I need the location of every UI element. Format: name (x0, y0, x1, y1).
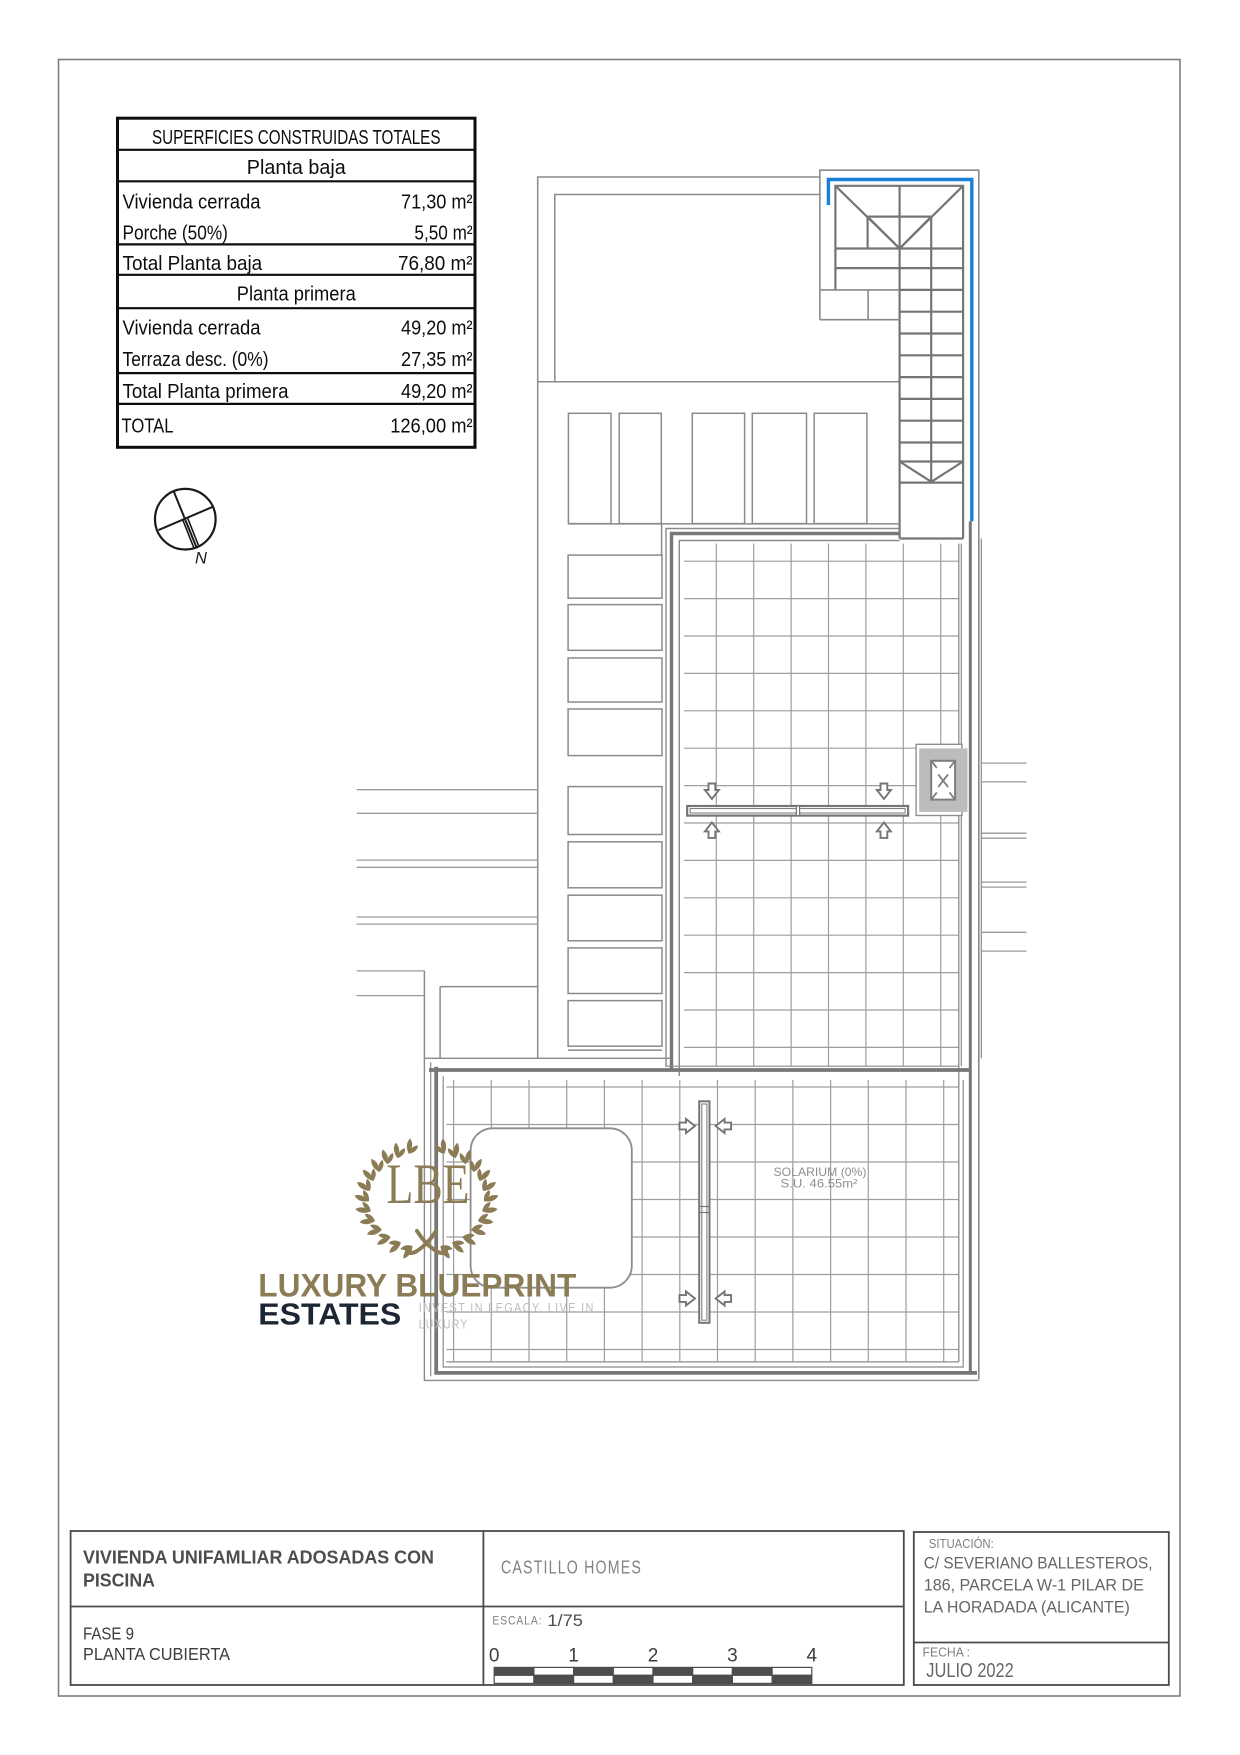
svg-text:N: N (195, 550, 207, 568)
svg-text:ESTATES: ESTATES (258, 1297, 401, 1332)
svg-text:PISCINA: PISCINA (83, 1571, 155, 1591)
svg-text:Vivienda cerrada: Vivienda cerrada (123, 191, 262, 213)
svg-text:C/ SEVERIANO BALLESTEROS,: C/ SEVERIANO BALLESTEROS, (924, 1554, 1153, 1573)
svg-text:Porche (50%): Porche (50%) (123, 223, 228, 245)
svg-text:PLANTA CUBIERTA: PLANTA CUBIERTA (83, 1644, 230, 1664)
svg-text:JULIO 2022: JULIO 2022 (926, 1660, 1014, 1682)
svg-text:INVEST IN LEGACY. LIVE IN: INVEST IN LEGACY. LIVE IN (419, 1301, 595, 1315)
svg-text:FECHA :: FECHA : (923, 1646, 971, 1660)
svg-text:SUPERFICIES CONSTRUIDAS TOTALE: SUPERFICIES CONSTRUIDAS TOTALES (152, 127, 441, 149)
svg-text:Vivienda cerrada: Vivienda cerrada (123, 318, 262, 340)
svg-text:Terraza desc. (0%): Terraza desc. (0%) (123, 349, 269, 371)
svg-text:2: 2 (648, 1646, 659, 1667)
svg-text:LA HORADADA (ALICANTE): LA HORADADA (ALICANTE) (924, 1598, 1130, 1617)
svg-text:0: 0 (489, 1646, 500, 1667)
svg-text:76,80 m²: 76,80 m² (398, 253, 473, 275)
svg-text:FASE 9: FASE 9 (83, 1624, 134, 1644)
svg-text:27,35 m²: 27,35 m² (401, 349, 473, 371)
svg-text:5,50 m²: 5,50 m² (414, 223, 472, 245)
svg-text:Total Planta baja: Total Planta baja (123, 253, 264, 275)
svg-text:LUXURY: LUXURY (419, 1318, 469, 1332)
svg-text:1/75: 1/75 (547, 1612, 583, 1630)
svg-text:S.U. 46.55m²: S.U. 46.55m² (781, 1176, 858, 1190)
svg-text:3: 3 (727, 1646, 738, 1667)
svg-text:ESCALA:: ESCALA: (492, 1616, 542, 1628)
svg-text:49,20 m²: 49,20 m² (401, 318, 473, 340)
svg-text:TOTAL: TOTAL (122, 416, 174, 438)
svg-text:186, PARCELA W-1 PILAR DE: 186, PARCELA W-1 PILAR DE (924, 1576, 1144, 1595)
svg-text:1: 1 (568, 1646, 579, 1667)
svg-text:CASTILLO HOMES: CASTILLO HOMES (501, 1558, 642, 1578)
svg-text:Total Planta primera: Total Planta primera (123, 381, 290, 403)
svg-text:Planta primera: Planta primera (237, 284, 357, 306)
svg-text:SITUACIÓN:: SITUACIÓN: (929, 1536, 994, 1551)
svg-text:49,20 m²: 49,20 m² (401, 381, 473, 403)
svg-text:VIVIENDA UNIFAMLIAR ADOSADAS C: VIVIENDA UNIFAMLIAR ADOSADAS CON (83, 1548, 434, 1568)
svg-text:71,30 m²: 71,30 m² (401, 191, 473, 213)
svg-text:4: 4 (807, 1646, 818, 1667)
svg-text:126,00 m²: 126,00 m² (390, 416, 473, 438)
svg-text:Planta baja: Planta baja (247, 157, 347, 179)
svg-text:LBE: LBE (387, 1153, 470, 1216)
